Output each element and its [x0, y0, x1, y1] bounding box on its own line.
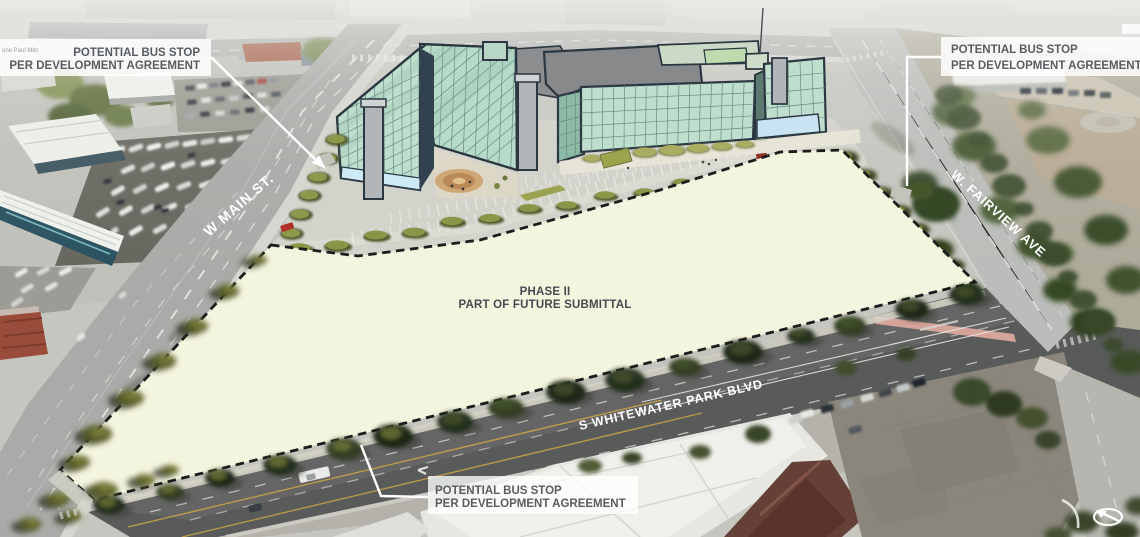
- svg-text:POTENTIAL BUS STOP: POTENTIAL BUS STOP: [951, 44, 1078, 56]
- svg-text:PER DEVELOPMENT AGREEMENT: PER DEVELOPMENT AGREEMENT: [9, 60, 200, 72]
- svg-text:POTENTIAL BUS STOP: POTENTIAL BUS STOP: [73, 47, 200, 59]
- svg-text:PART OF FUTURE SUBMITTAL: PART OF FUTURE SUBMITTAL: [458, 299, 631, 311]
- svg-text:PHASE II: PHASE II: [520, 286, 571, 298]
- svg-text:PER DEVELOPMENT AGREEMENT: PER DEVELOPMENT AGREEMENT: [435, 498, 626, 510]
- svg-text:one Paul Mitc: one Paul Mitc: [2, 48, 38, 54]
- svg-text:POTENTIAL BUS STOP: POTENTIAL BUS STOP: [435, 485, 562, 497]
- svg-text:PER DEVELOPMENT AGREEMENT: PER DEVELOPMENT AGREEMENT: [951, 60, 1140, 72]
